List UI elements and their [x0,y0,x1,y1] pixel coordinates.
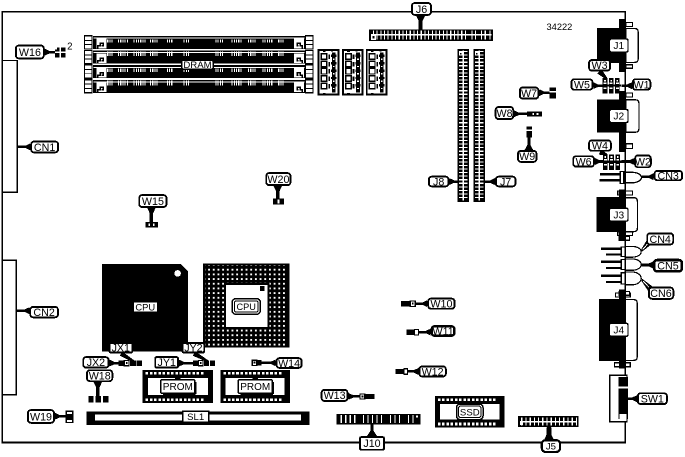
svg-text:W20: W20 [267,174,289,186]
svg-text:W3: W3 [591,60,607,72]
svg-text:W11: W11 [433,326,454,338]
svg-text:CPU: CPU [236,302,255,312]
svg-text:J7: J7 [500,176,511,188]
svg-text:CN5: CN5 [657,261,678,273]
svg-text:J5: J5 [546,442,556,453]
svg-text:CN4: CN4 [650,234,671,246]
svg-text:W14: W14 [278,358,300,370]
svg-text:SL1: SL1 [187,412,204,423]
svg-text:DRAM: DRAM [183,60,211,71]
svg-text:J3: J3 [613,210,624,221]
svg-text:W18: W18 [89,371,111,383]
svg-text:W4: W4 [592,141,608,153]
svg-text:W13: W13 [324,390,346,402]
svg-text:W6: W6 [576,156,592,168]
svg-text:34222: 34222 [547,22,573,32]
svg-text:J6: J6 [416,4,427,16]
svg-text:J8: J8 [433,176,444,188]
svg-text:W9: W9 [519,151,535,163]
svg-text:W2: W2 [635,156,651,168]
svg-text:SSD: SSD [460,407,480,418]
svg-text:W1: W1 [633,79,649,91]
svg-text:CN1: CN1 [34,142,55,154]
svg-text:PROM: PROM [163,382,193,393]
svg-text:JY1: JY1 [157,357,175,369]
svg-text:SW1: SW1 [641,394,664,406]
svg-text:W15: W15 [142,196,164,208]
svg-text:JX1: JX1 [112,343,130,355]
svg-text:J1: J1 [613,41,624,52]
svg-text:JX2: JX2 [87,357,105,369]
svg-text:W10: W10 [430,299,452,311]
svg-text:J4: J4 [613,326,624,337]
svg-text:W8: W8 [496,108,512,120]
svg-text:W16: W16 [19,47,41,59]
svg-text:PROM: PROM [240,382,270,393]
svg-text:CN3: CN3 [658,171,679,183]
svg-text:J10: J10 [363,438,380,450]
svg-text:CN2: CN2 [33,307,54,319]
svg-text:W19: W19 [30,411,52,423]
svg-text:J2: J2 [613,112,624,123]
svg-text:CN6: CN6 [650,288,671,300]
svg-text:W12: W12 [422,366,444,378]
svg-text:JY2: JY2 [184,343,202,355]
svg-text:W7: W7 [521,88,537,100]
svg-text:W5: W5 [574,79,590,91]
svg-text:2: 2 [67,42,72,53]
svg-text:CPU: CPU [135,302,155,313]
